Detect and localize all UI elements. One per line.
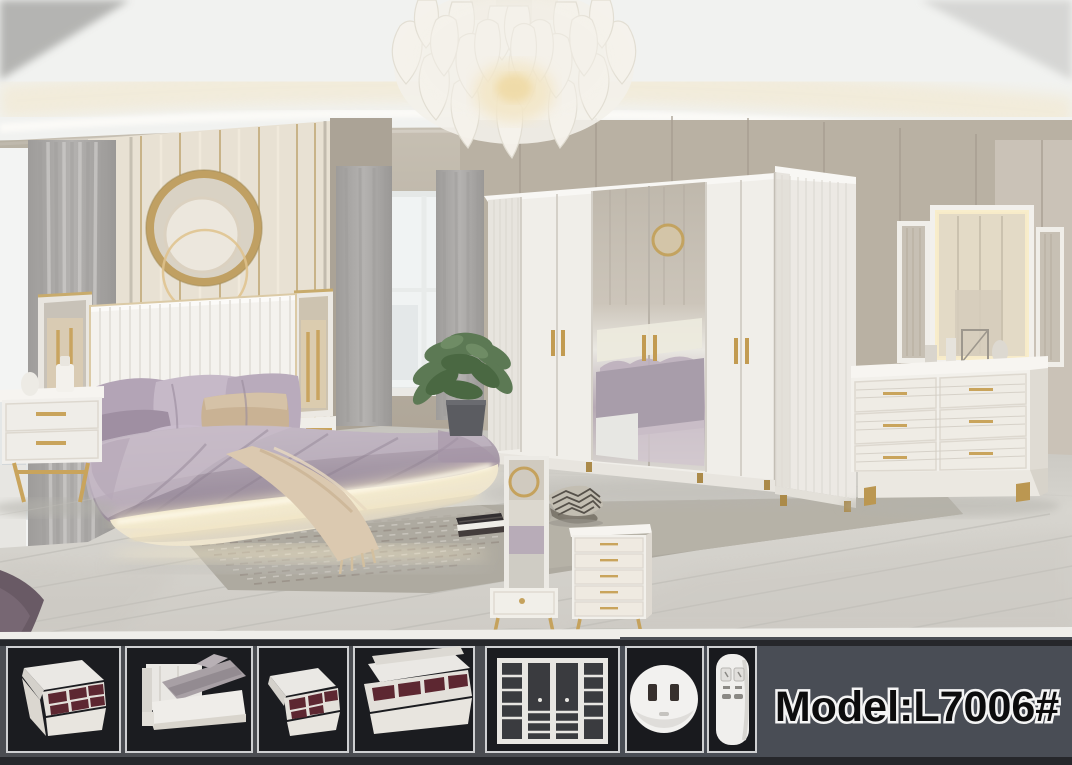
svg-text:Model:L7006#: Model:L7006# (775, 683, 1059, 731)
